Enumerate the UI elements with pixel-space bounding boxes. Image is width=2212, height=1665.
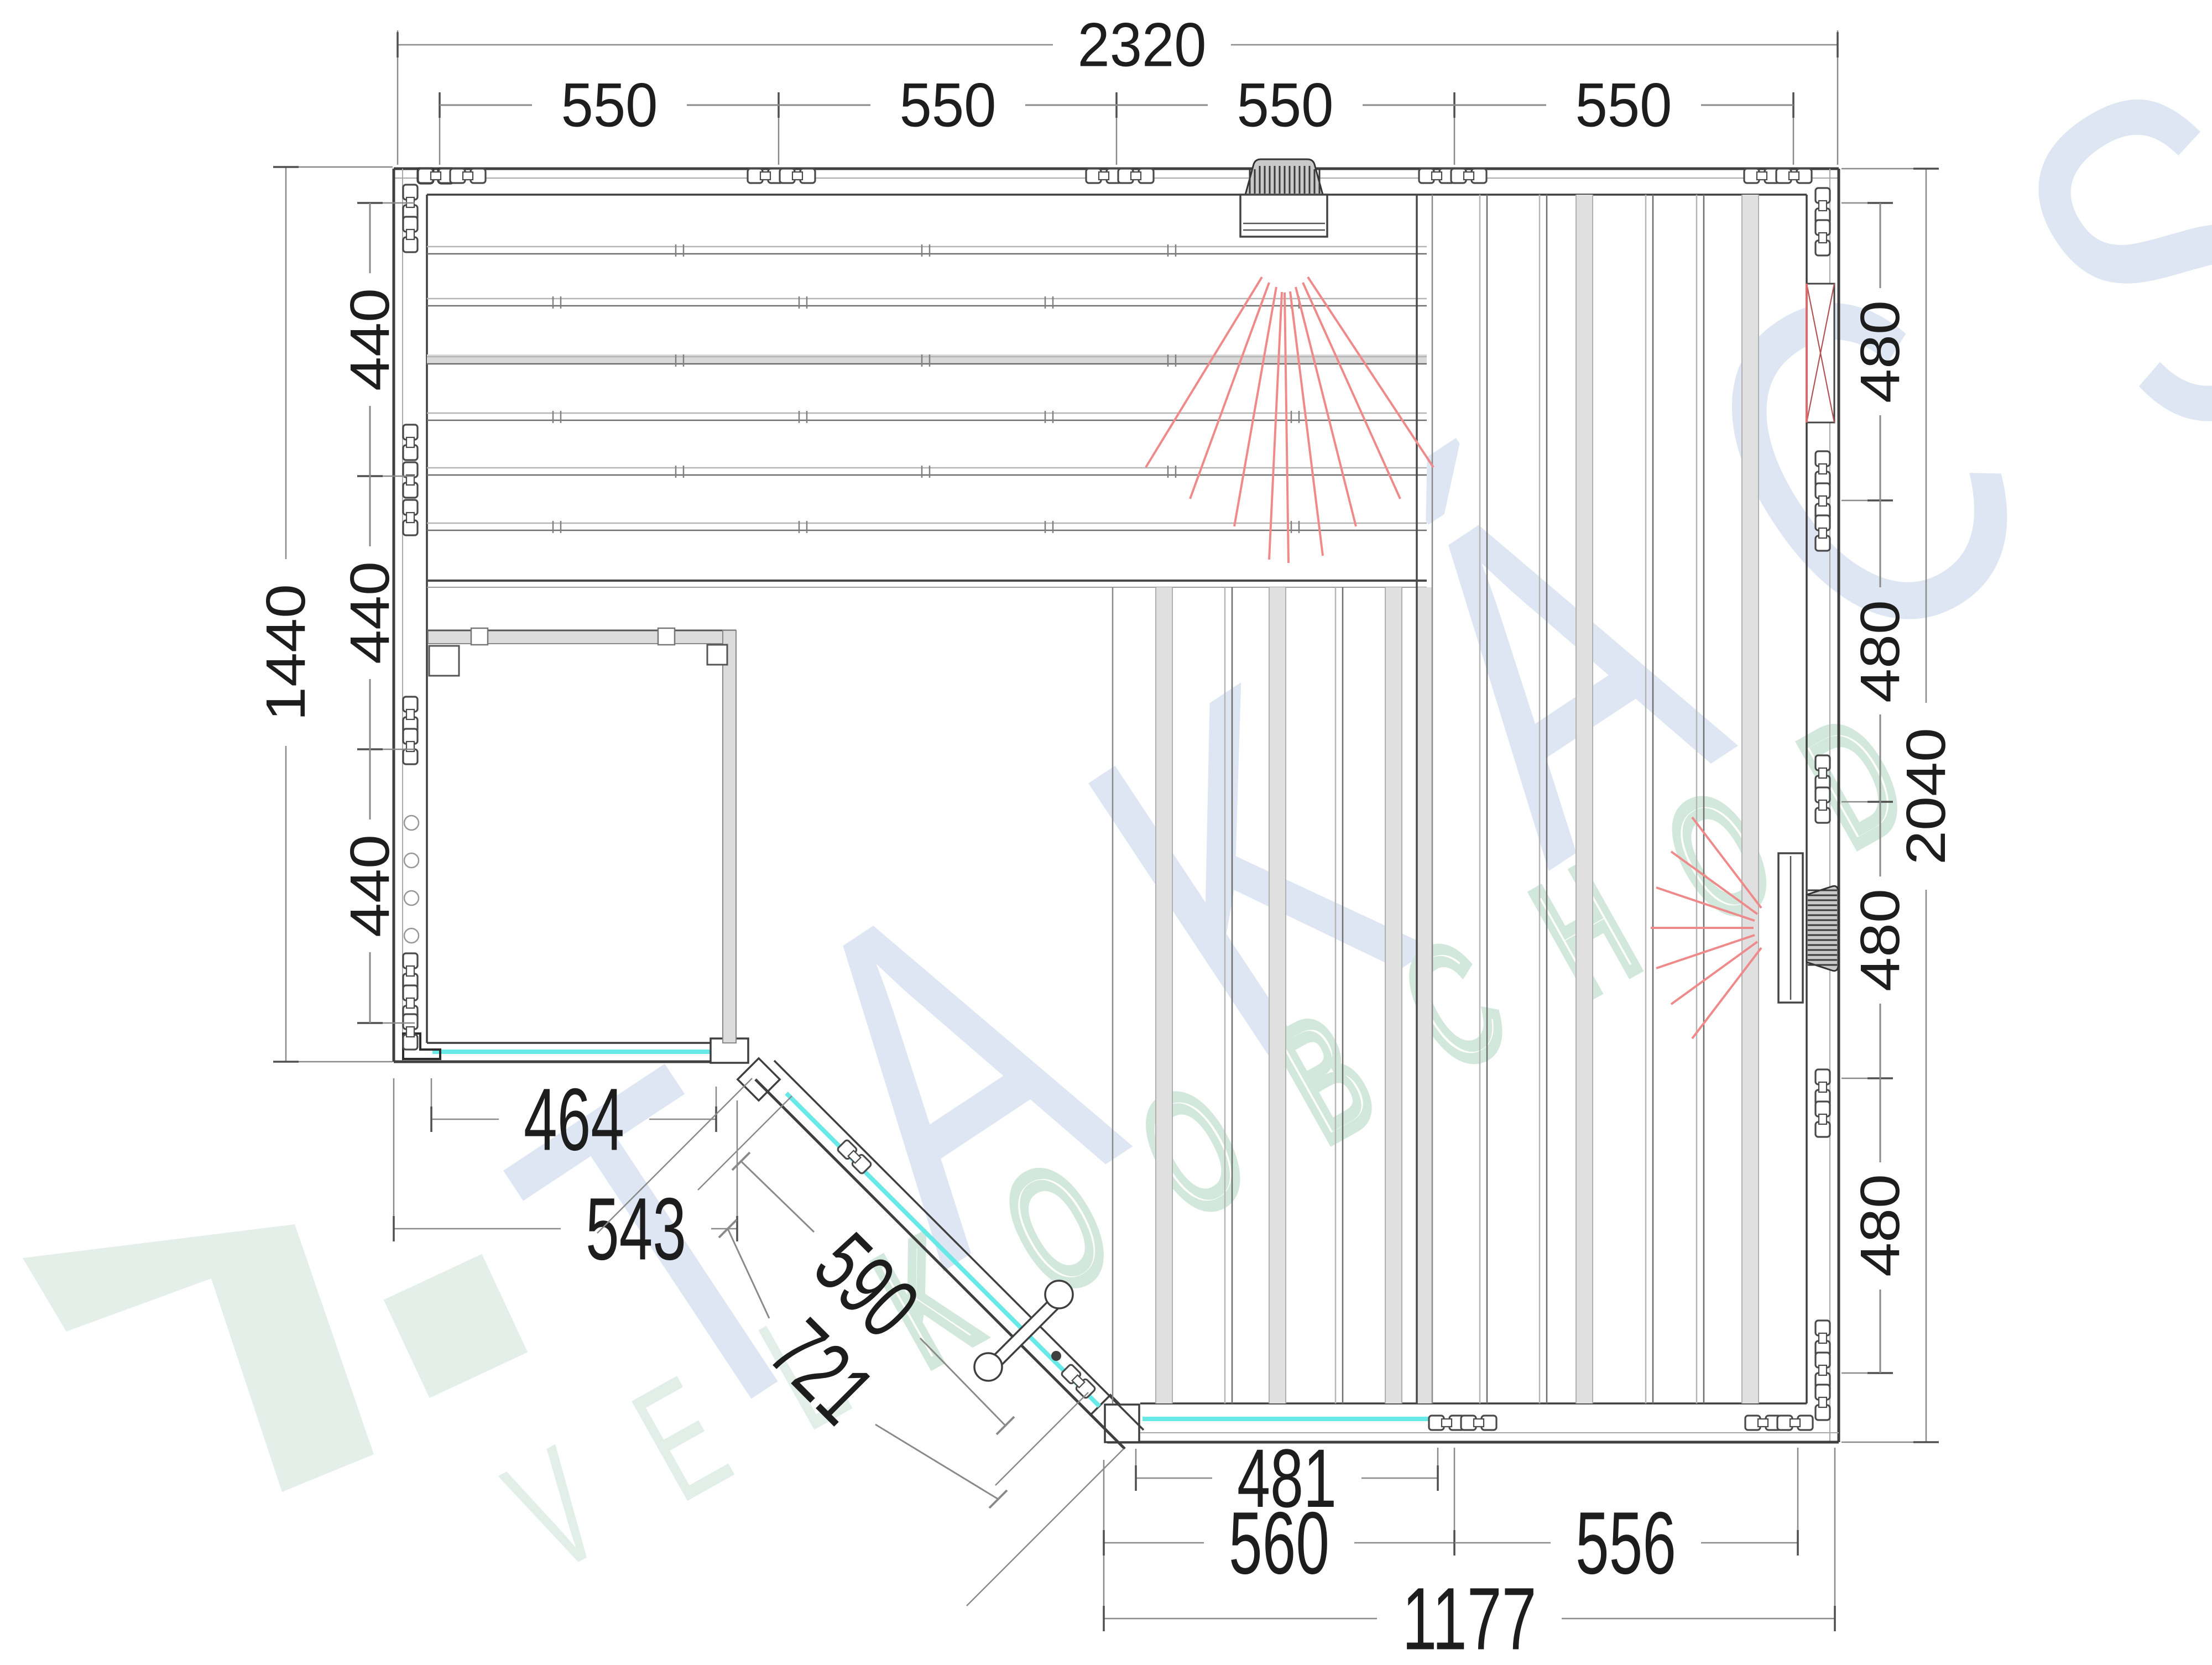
svg-text:480: 480 <box>1849 600 1911 703</box>
svg-text:550: 550 <box>1575 71 1672 140</box>
svg-text:550: 550 <box>561 71 658 140</box>
svg-text:440: 440 <box>339 561 401 664</box>
svg-text:480: 480 <box>1849 1174 1911 1277</box>
svg-text:550: 550 <box>900 71 997 140</box>
svg-text:480: 480 <box>1849 889 1911 991</box>
svg-text:2040: 2040 <box>1895 728 1957 865</box>
svg-text:1177: 1177 <box>1402 1569 1537 1665</box>
svg-text:440: 440 <box>339 834 401 937</box>
svg-text:464: 464 <box>524 1070 624 1169</box>
svg-text:480: 480 <box>1849 300 1911 403</box>
svg-text:560: 560 <box>1229 1494 1329 1593</box>
svg-text:1440: 1440 <box>255 584 317 721</box>
svg-text:550: 550 <box>1237 71 1334 140</box>
svg-text:556: 556 <box>1575 1494 1676 1593</box>
svg-text:2320: 2320 <box>1078 11 1207 80</box>
svg-text:440: 440 <box>339 288 401 391</box>
